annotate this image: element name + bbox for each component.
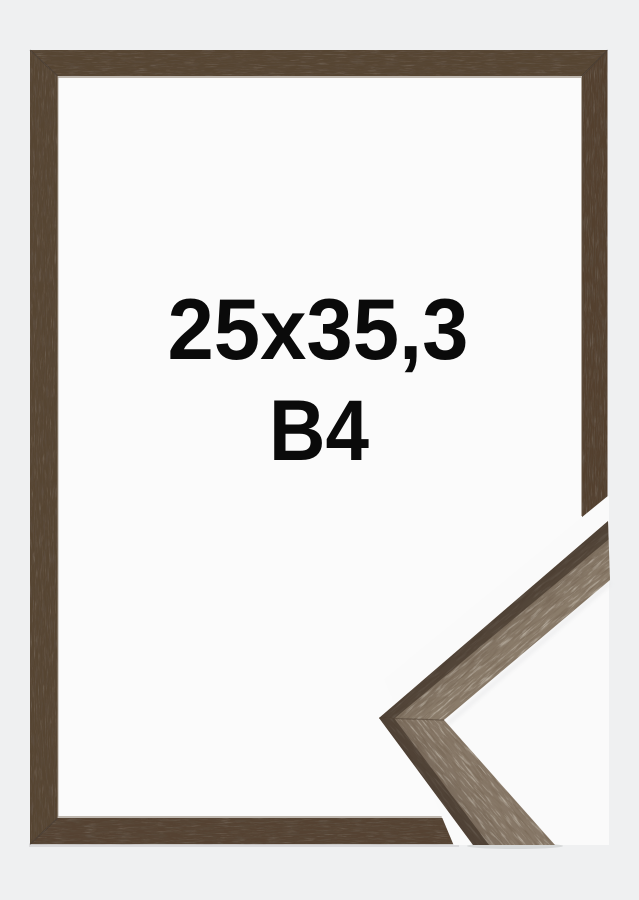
svg-text:B4: B4 (269, 383, 369, 479)
svg-text:25x35,3: 25x35,3 (168, 282, 469, 378)
